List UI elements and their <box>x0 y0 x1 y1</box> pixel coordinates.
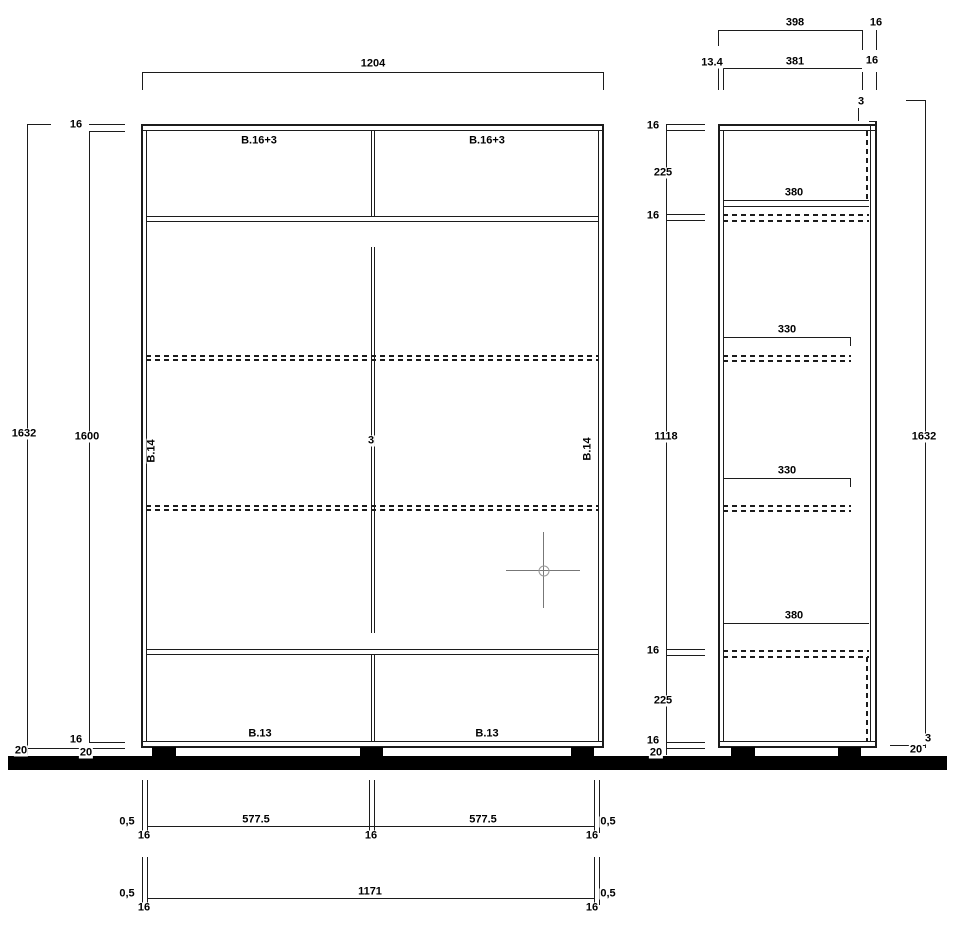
front-side-panel-label-right: B.14 <box>583 436 594 461</box>
front-hidden-shelf1-b <box>146 359 599 361</box>
dim-front-width-label: 1204 <box>360 59 386 70</box>
dim-row1-panel-left-label: 16 <box>137 831 151 842</box>
dim-side-panel16-label: 16 <box>865 56 879 67</box>
dim-side-shelf-bottom-tick-b <box>666 655 705 656</box>
side-foot-back <box>838 747 861 756</box>
dim-side-shelf-top-tick-a <box>666 214 705 215</box>
side-shelf-bottom-depth-label: 380 <box>784 611 804 622</box>
front-hidden-shelf2-b <box>146 509 599 511</box>
front-shelf-upper-b <box>146 221 599 222</box>
front-outline-left <box>141 124 143 748</box>
dim-row1-ext-right-a <box>594 780 595 833</box>
side-shelf-lower-depth-label: 330 <box>777 466 797 477</box>
front-foot-right <box>571 747 594 756</box>
side-shelf-top-depth-label: 380 <box>784 188 804 199</box>
front-outline-right <box>602 124 604 748</box>
dim-front-bottom-panel-label: 16 <box>69 735 83 746</box>
dim-front-top-panel-label: 16 <box>69 120 83 131</box>
front-compartment-label-top-right: B.16+3 <box>468 136 506 147</box>
dim-side-bottom-panel-label: 16 <box>646 736 660 747</box>
front-foot-center <box>360 747 383 756</box>
front-bottom-panel-inner <box>141 741 604 742</box>
dim-side-depth381-label: 381 <box>785 57 805 68</box>
dim-side-depth381-line <box>723 68 862 69</box>
dim-row2-panel-left-label: 16 <box>137 903 151 914</box>
dim-front-plinth-inner-label: 20 <box>79 748 93 759</box>
dim-row2-ext-left-a <box>142 857 143 905</box>
front-shelf-lower-a <box>146 649 599 650</box>
dim-side-depth398-tick-right-b <box>876 30 877 50</box>
dim-side-top-panel-tick-b <box>666 130 705 131</box>
dim-side-backtop3-label: 3 <box>857 97 865 108</box>
dim-side-section-bottom-label: 225 <box>653 696 673 707</box>
side-shelf-bottom-hidden-a <box>723 650 869 652</box>
dim-side-back134-tick-a <box>718 68 719 90</box>
dim-front-plinth-tick <box>27 748 125 749</box>
front-bottom-divider-a <box>371 655 372 741</box>
front-foot-left <box>152 747 176 756</box>
side-shelf-upper-hidden-a <box>723 355 851 357</box>
front-outline-top <box>141 124 604 126</box>
dim-side-section-mid-label: 1118 <box>653 432 678 443</box>
side-top-panel-inner <box>718 130 877 131</box>
crosshair-cursor-center <box>539 566 550 577</box>
side-shelf-lower-line <box>723 478 851 479</box>
side-shelf-top-hidden-b <box>723 220 869 222</box>
side-back-groove-dashed-bottom <box>866 657 868 741</box>
dim-side-shelf-top-tick-b <box>666 220 705 221</box>
dim-front-height-inner-label: 1600 <box>74 432 100 443</box>
dim-row2-ext-right-a <box>594 857 595 905</box>
dim-front-height-total-tick-top <box>27 124 51 125</box>
dim-side-height-total-line <box>925 100 926 748</box>
dim-row1-ext-left-a <box>142 780 143 833</box>
dim-side-front16-label: 16 <box>869 18 883 29</box>
side-shelf-bottom-hidden-b <box>723 656 869 658</box>
side-shelf-upper-end-tick <box>850 337 851 346</box>
side-shelf-upper-hidden-b <box>723 360 851 362</box>
dim-side-plinth-label: 20 <box>649 748 663 759</box>
dim-side-depth398-tick-left <box>718 30 719 46</box>
dim-row2-panel-right-label: 16 <box>585 903 599 914</box>
dim-side-depth398-line <box>718 30 862 31</box>
side-shelf-lower-hidden-a <box>723 505 851 507</box>
dim-side-shelf-top-label: 16 <box>646 211 660 222</box>
dim-side-back134-label: 13.4 <box>700 58 723 69</box>
front-side-panel-label-left: B.14 <box>147 438 158 463</box>
front-compartment-label-bottom-right: B.13 <box>474 729 499 740</box>
side-outline-top <box>718 124 877 126</box>
front-top-panel-inner <box>141 130 604 131</box>
side-shelf-upper-line <box>723 337 851 338</box>
dim-row1-width-right-label: 577.5 <box>468 815 498 826</box>
dim-side-bottom-panel-tick-b <box>666 748 705 749</box>
front-compartment-label-bottom-left: B.13 <box>247 729 272 740</box>
ground-line <box>8 756 947 770</box>
dim-row2-gap-right-label: 0,5 <box>599 889 616 900</box>
front-top-divider-a <box>371 130 372 216</box>
front-center-gap-label: 3 <box>367 436 375 447</box>
dim-side-height-total-tick-top <box>906 100 925 101</box>
dim-row1-panel-right-label: 16 <box>585 831 599 842</box>
dim-side-height-total-label: 1632 <box>911 432 937 443</box>
dim-front-top-panel-tick-b <box>89 131 125 132</box>
dim-side-depth398-tick-right-a <box>862 30 863 50</box>
dim-side-top-panel-label: 16 <box>646 121 660 132</box>
dim-side-shelf-bottom-label: 16 <box>646 646 660 657</box>
side-outline-back <box>875 121 877 748</box>
side-back-groove-dashed-top <box>866 131 868 199</box>
front-compartment-label-top-left: B.16+3 <box>240 136 278 147</box>
side-shelf-bottom-line <box>723 623 869 624</box>
dim-side-plinth-right-label: 20 <box>909 745 923 756</box>
side-outline-front <box>718 124 720 748</box>
dim-front-width-tick-right <box>603 72 604 90</box>
front-hidden-shelf2-a <box>146 505 599 507</box>
dim-row1-gap-right-label: 0,5 <box>599 817 616 828</box>
side-foot-front <box>731 747 755 756</box>
dim-side-backtop3-leader <box>858 108 859 121</box>
side-shelf-lower-hidden-b <box>723 510 851 512</box>
side-shelf-lower-end-tick <box>850 478 851 487</box>
dim-side-backbottom3-label: 3 <box>924 734 932 745</box>
dim-row1-gap-left-label: 0,5 <box>118 817 135 828</box>
side-bottom-panel-inner <box>718 741 877 742</box>
dim-side-section-top-label: 225 <box>653 168 673 179</box>
dim-front-height-total-label: 1632 <box>11 429 37 440</box>
dim-side-depth398-label: 398 <box>785 18 805 29</box>
dim-front-bottom-panel-tick <box>89 742 125 743</box>
dim-row1-width-left-label: 577.5 <box>241 815 271 826</box>
side-shelf-top-hidden-a <box>723 214 869 216</box>
dim-row2-width-inner-label: 1171 <box>357 887 383 898</box>
front-hidden-shelf1-a <box>146 355 599 357</box>
side-shelf-top-line-a <box>723 200 869 201</box>
dim-side-top-panel-tick-a <box>666 124 705 125</box>
side-shelf-top-line-b <box>723 206 869 207</box>
front-shelf-upper-a <box>146 216 599 217</box>
side-back-panel-inner <box>870 124 871 742</box>
dim-row1-panel-mid-label: 16 <box>364 831 378 842</box>
dim-row2-gap-left-label: 0,5 <box>118 889 135 900</box>
dim-front-top-panel-tick-a <box>89 124 125 125</box>
dim-front-plinth-outer-label: 20 <box>14 746 28 757</box>
side-shelf-upper-depth-label: 330 <box>777 325 797 336</box>
front-shelf-lower-b <box>146 654 599 655</box>
dim-front-width-tick-left <box>142 72 143 90</box>
dim-front-width-line <box>142 72 604 73</box>
dim-row2-line <box>147 898 594 899</box>
dim-side-panel16-tick-a <box>862 72 863 90</box>
front-top-divider-b <box>374 130 375 216</box>
dim-side-panel16-tick-b <box>876 72 877 90</box>
technical-drawing-canvas: B.16+3 B.16+3 B.14 B.14 3 B.13 B.13 380 … <box>0 0 979 929</box>
front-bottom-divider-b <box>374 655 375 741</box>
dim-side-bottom-panel-tick-a <box>666 742 705 743</box>
dim-side-back134-tick-b <box>723 68 724 90</box>
dim-row1-line <box>147 826 594 827</box>
dim-side-shelf-bottom-tick-a <box>666 649 705 650</box>
side-back-panel-top-step <box>869 121 877 122</box>
dim-front-height-total-line <box>27 124 28 755</box>
